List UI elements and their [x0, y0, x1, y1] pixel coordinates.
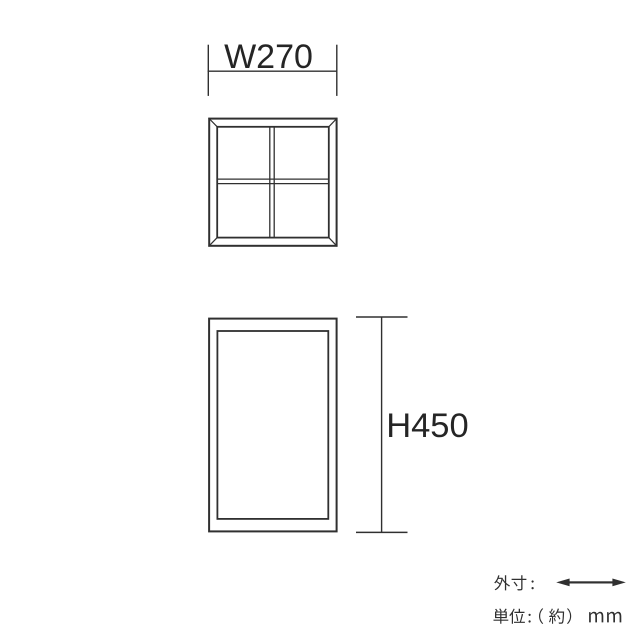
svg-text:W270: W270: [224, 38, 313, 76]
svg-text:H450: H450: [386, 407, 468, 445]
